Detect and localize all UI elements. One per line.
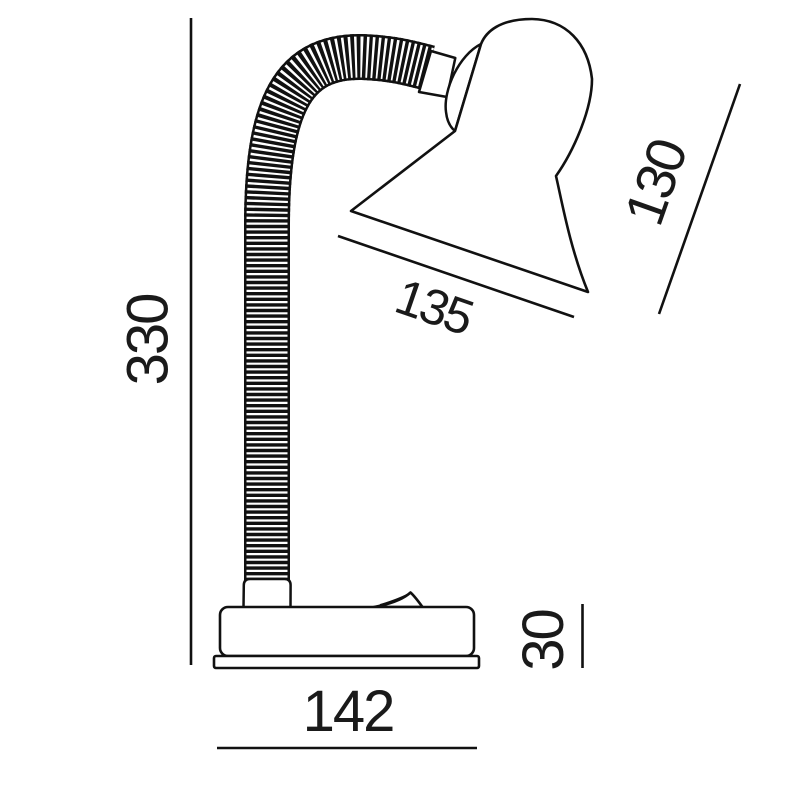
svg-text:142: 142 [303,679,394,744]
svg-text:30: 30 [511,610,576,671]
svg-text:130: 130 [612,132,699,233]
svg-text:330: 330 [116,295,181,386]
